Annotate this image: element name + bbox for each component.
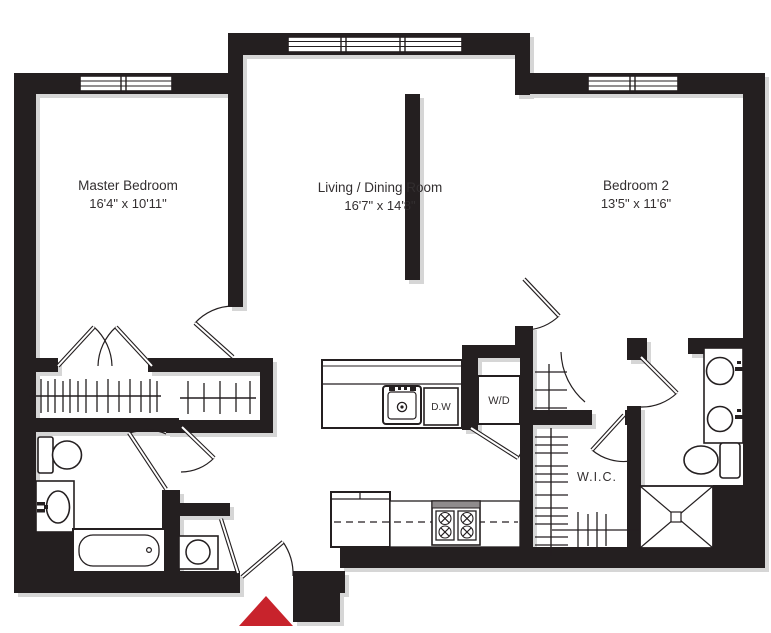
floor-plan-svg: D.W W/D (0, 0, 771, 633)
master-bath-door (129, 430, 166, 489)
master-closet-doors (58, 327, 152, 366)
range-stove (432, 501, 480, 545)
bath2-double-vanity (704, 348, 743, 443)
master-bedroom-window (80, 76, 172, 91)
living-dining-dimensions: 16'7" x 14'8" (344, 198, 416, 213)
wic-rods (535, 428, 640, 556)
wic-label: W.I.C. (577, 470, 617, 484)
dishwasher: D.W (424, 388, 458, 425)
washer-dryer: W/D (478, 376, 520, 424)
room-labels: Master Bedroom 16'4" x 10'11" Living / D… (78, 178, 671, 484)
master-bedroom-label: Master Bedroom (78, 178, 178, 193)
bath2-toilet (684, 443, 740, 478)
living-room-window (288, 37, 462, 52)
master-closet-rod (29, 379, 161, 413)
hall-closet-door (181, 427, 214, 472)
refrigerator (331, 492, 390, 547)
windows (80, 37, 678, 91)
bedroom-2-window (588, 76, 678, 91)
water-heater (179, 536, 218, 569)
dishwasher-label: D.W (431, 402, 451, 413)
floor-plan: D.W W/D (0, 0, 771, 633)
bedroom-2-dimensions: 13'5" x 11'6" (601, 196, 672, 211)
master-bath-toilet (38, 437, 82, 473)
bedroom-2-label: Bedroom 2 (603, 178, 669, 193)
master-bath-vanity-sink (36, 481, 74, 532)
entrance-marker-triangle (239, 596, 293, 626)
entrance-door (242, 542, 293, 577)
washer-dryer-door (471, 428, 527, 458)
master-bedroom-dimensions: 16'4" x 10'11" (89, 196, 167, 211)
kitchen-sink (383, 386, 421, 424)
bath2-door (641, 357, 677, 407)
hall-closet-rod (180, 381, 256, 414)
bedroom-2-entry-door (524, 279, 585, 402)
linen-closet-shelves (535, 364, 567, 416)
washer-dryer-label: W/D (488, 395, 509, 407)
shower (640, 486, 713, 548)
living-dining-label: Living / Dining Room (318, 180, 443, 195)
master-bedroom-door (195, 306, 233, 357)
bathtub (73, 529, 165, 572)
water-heater-closet-door (221, 519, 238, 573)
